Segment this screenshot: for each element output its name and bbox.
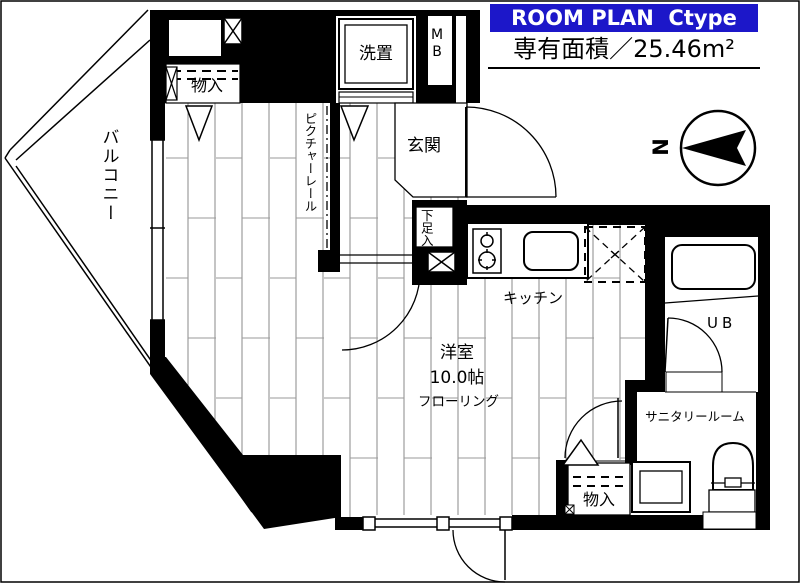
alcove bbox=[169, 20, 221, 56]
sanitary-label: サニタリールーム bbox=[638, 410, 752, 424]
bathtub bbox=[672, 245, 755, 289]
sink bbox=[524, 232, 578, 270]
floor-plan-page: ROOM PLAN Ctype 専有面積／25.46m² N バルコニー 物入 … bbox=[0, 0, 800, 583]
storage-top-label: 物入 bbox=[176, 77, 238, 95]
kitchen-label: キッチン bbox=[498, 290, 568, 307]
bottom-window bbox=[363, 515, 512, 530]
pipe-space-box bbox=[224, 18, 242, 44]
picture-rail-label: ピクチャーレール bbox=[302, 112, 316, 267]
area-label: 専有面積／25.46m² bbox=[488, 36, 760, 69]
room-floor-label: フローリング bbox=[418, 395, 496, 411]
ub-door-step bbox=[666, 372, 722, 394]
duct-box bbox=[428, 252, 455, 272]
storage-bottom-label: 物入 bbox=[570, 491, 628, 509]
room-size-label: 10.0帖 bbox=[423, 369, 491, 389]
north-label: N bbox=[649, 138, 673, 156]
meter-box-label: MB bbox=[429, 27, 445, 73]
kitchen-counter bbox=[467, 223, 588, 278]
washer-label: 洗置 bbox=[344, 45, 408, 65]
shoe-box-label: 下足入 bbox=[419, 209, 433, 243]
plan-title: ROOM PLAN Ctype bbox=[490, 4, 758, 32]
meter-box-strip bbox=[456, 16, 466, 103]
floor-plan-drawing bbox=[0, 0, 800, 583]
balcony-label: バルコニー bbox=[98, 128, 118, 268]
entrance-label: 玄関 bbox=[398, 137, 450, 157]
compass bbox=[681, 111, 755, 185]
unit-bath-label: UB bbox=[707, 315, 736, 332]
room-name-label: 洋室 bbox=[428, 344, 486, 364]
left-window bbox=[149, 140, 166, 320]
